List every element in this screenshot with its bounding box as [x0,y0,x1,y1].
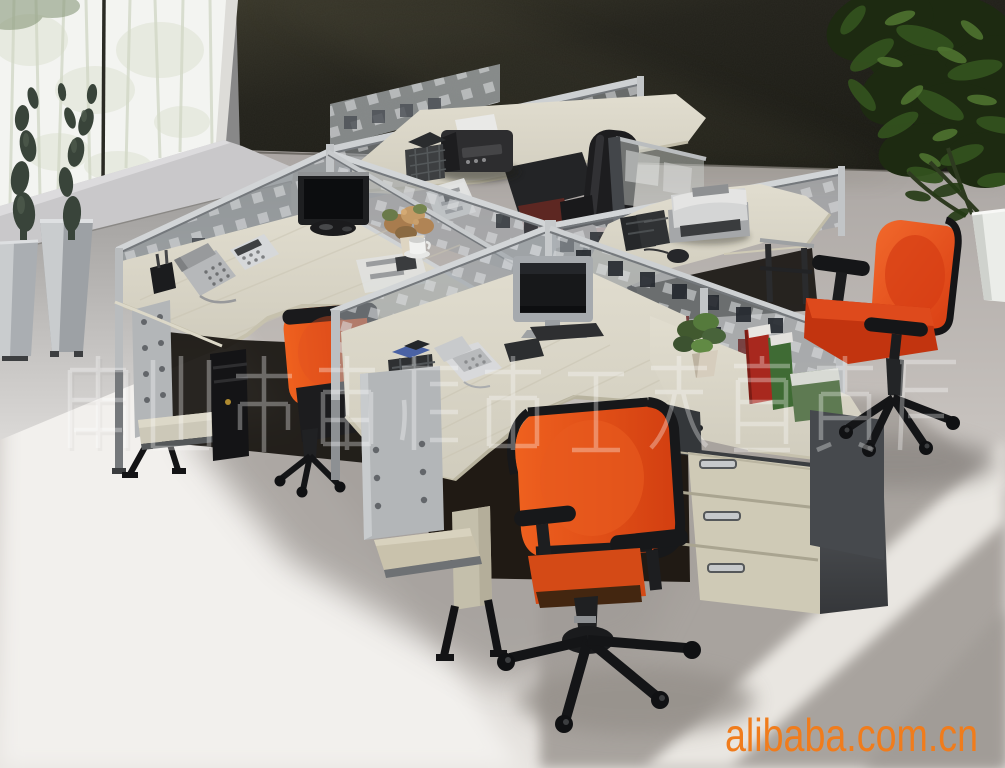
svg-text:alibaba.com.cn: alibaba.com.cn [725,709,978,761]
